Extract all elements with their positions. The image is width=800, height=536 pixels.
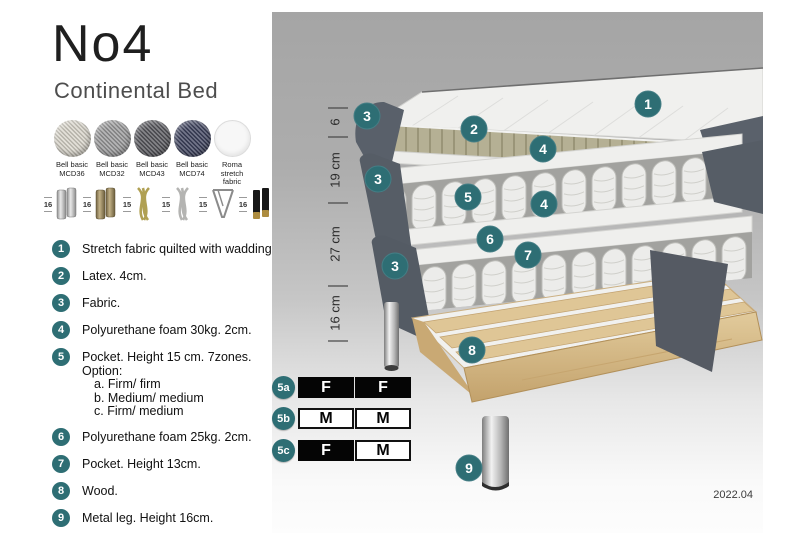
callout-5: 5 [455,184,481,210]
part-item-2: 2 Latex. 4cm. [52,267,288,285]
gold-twist-leg-icon [132,186,156,222]
firmness-option-5b: 5b M M [272,407,411,430]
svg-text:4: 4 [539,141,547,157]
fabric-swatch-mcd74: Bell basicMCD74 [172,120,212,187]
leg-options-row: 16 16 15 15 [42,186,276,222]
fabric-swatch-row: Bell basicMCD36 Bell basicMCD32 Bell bas… [52,120,252,187]
firmness-cell: M [355,408,411,429]
firmness-cell: F [298,440,354,461]
part-text: Polyurethane foam 30kg. 2cm. [82,321,252,339]
fabric-circle [54,120,91,157]
product-sheet: { "title": "No4", "subtitle": "Continent… [0,0,800,533]
callout-3-middle: 3 [365,166,391,192]
part-option-a: a. Firm/ firm [94,378,288,392]
part-item-3: 3 Fabric. [52,294,288,312]
svg-text:1: 1 [644,96,652,112]
svg-text:8: 8 [468,342,476,358]
callout-8: 8 [459,337,485,363]
dash [83,211,91,212]
fabric-swatch-mcd43: Bell basicMCD43 [132,120,172,187]
part-number-badge: 4 [52,321,70,339]
callout-9: 9 [456,455,482,481]
svg-text:5: 5 [464,189,472,205]
hairpin-leg-icon [208,186,236,222]
part-number-badge: 3 [52,294,70,312]
leg-height: 16 [44,195,52,214]
callout-4-upper: 4 [530,136,556,162]
part-item-8: 8 Wood. [52,482,288,500]
leg-height: 15 [123,195,131,214]
base-box [372,216,762,491]
part-item-7: 7 Pocket. Height 13cm. [52,455,288,473]
fabric-circle [174,120,211,157]
leg-height: 16 [83,195,91,214]
svg-text:3: 3 [391,258,399,274]
part-text: Polyurethane foam 25kg. 2cm. [82,428,252,446]
dimension-scale: 6 19 cm 27 cm 16 cm [327,108,348,341]
dimension-label-top-mattress: 6 [327,118,342,125]
dash [123,211,131,212]
svg-text:2: 2 [470,121,478,137]
firmness-badge: 5c [272,439,295,462]
dash [199,211,207,212]
part-item-9: 9 Metal leg. Height 16cm. [52,509,288,527]
parts-list: 1 Stretch fabric quilted with wadding. 2… [52,240,288,536]
black-brass-leg-icon [248,186,274,222]
callout-4-lower: 4 [531,191,557,217]
leg-option-hairpin: 15 [198,186,237,222]
svg-text:3: 3 [374,171,382,187]
part-number-badge: 6 [52,428,70,446]
callout-3-bottom: 3 [382,253,408,279]
svg-text:4: 4 [540,196,548,212]
dimension-label-base: 27 cm [327,226,342,261]
fabric-circle [134,120,171,157]
part-item-1: 1 Stretch fabric quilted with wadding. [52,240,288,258]
svg-text:3: 3 [363,108,371,124]
fabric-swatch-mcd36: Bell basicMCD36 [52,120,92,187]
fabric-swatch-roma: Romastretch fabric [212,120,252,187]
leg-option-chrome-cylinder: 16 [42,186,81,222]
part-text: Pocket. Height 13cm. [82,455,201,473]
dash [44,211,52,212]
firmness-option-5c: 5c F M [272,439,411,462]
page-subtitle: Continental Bed [54,78,218,104]
callout-6: 6 [477,226,503,252]
part-item-5: 5 Pocket. Height 15 cm. 7zones. Option: … [52,348,288,419]
svg-text:9: 9 [465,460,473,476]
silver-twist-leg-icon [171,186,195,222]
part-option-b: b. Medium/ medium [94,392,288,406]
part-text: Latex. 4cm. [82,267,147,285]
firmness-cell: F [355,377,411,398]
firmness-bar: F M [298,440,411,461]
fabric-label: Bell basicMCD32 [96,161,128,178]
svg-text:6: 6 [486,231,494,247]
firmness-bar: M M [298,408,411,429]
leg-height: 15 [199,195,207,214]
fabric-circle [94,120,131,157]
part-text-main: Pocket. Height 15 cm. 7zones. Option: [82,350,252,378]
dimension-label-middle-mattress: 19 cm [327,152,342,187]
fabric-label: Bell basicMCD43 [136,161,168,178]
firmness-cell: M [298,408,354,429]
firmness-badge: 5a [272,376,295,399]
callout-1: 1 [635,91,661,117]
part-text: Metal leg. Height 16cm. [82,509,213,527]
part-number-badge: 1 [52,240,70,258]
part-item-6: 6 Polyurethane foam 25kg. 2cm. [52,428,288,446]
firmness-option-5a: 5a F F [272,376,411,399]
callout-2: 2 [461,116,487,142]
illustration-panel: 6 19 cm 27 cm 16 cm 1 2 3 3 [272,12,763,533]
part-number-badge: 5 [52,348,70,366]
firmness-bar: F F [298,377,411,398]
firmness-cell: F [298,377,354,398]
part-number-badge: 8 [52,482,70,500]
part-text: Stretch fabric quilted with wadding. [82,240,275,258]
dash [44,197,52,198]
dash [239,211,247,212]
dash [162,211,170,212]
dash [83,197,91,198]
firmness-badge: 5b [272,407,295,430]
fabric-label: Bell basicMCD36 [56,161,88,178]
chrome-cylinder-leg-icon [53,186,79,222]
leg-option-gold-twist: 15 [120,186,159,222]
part-number-badge: 2 [52,267,70,285]
metal-leg-back [384,302,399,371]
part-text: Fabric. [82,294,120,312]
leg-option-black-brass: 16 [237,186,276,222]
page-title: No4 [52,14,153,74]
part-number-badge: 7 [52,455,70,473]
callout-3-top: 3 [354,103,380,129]
fabric-circle [214,120,251,157]
fabric-swatch-mcd32: Bell basicMCD32 [92,120,132,187]
part-text: Wood. [82,482,118,500]
part-number-badge: 9 [52,509,70,527]
dash [162,197,170,198]
leg-option-brass-cylinder: 16 [81,186,120,222]
callout-7: 7 [515,242,541,268]
fabric-label: Bell basicMCD74 [176,161,208,178]
svg-text:7: 7 [524,247,532,263]
leg-option-silver-twist: 15 [159,186,198,222]
dimension-label-legs: 16 cm [327,295,342,330]
part-item-4: 4 Polyurethane foam 30kg. 2cm. [52,321,288,339]
brass-cylinder-leg-icon [92,186,118,222]
part-option-c: c. Firm/ medium [94,405,288,419]
dash [123,197,131,198]
firmness-cell: M [355,440,411,461]
fabric-label: Romastretch fabric [212,161,252,187]
part-text: Pocket. Height 15 cm. 7zones. Option: a.… [82,348,288,419]
dash [199,197,207,198]
version-label: 2022.04 [713,489,753,501]
leg-height: 15 [162,195,170,214]
dash [239,197,247,198]
leg-height: 16 [239,195,247,214]
metal-leg-front [482,416,509,491]
